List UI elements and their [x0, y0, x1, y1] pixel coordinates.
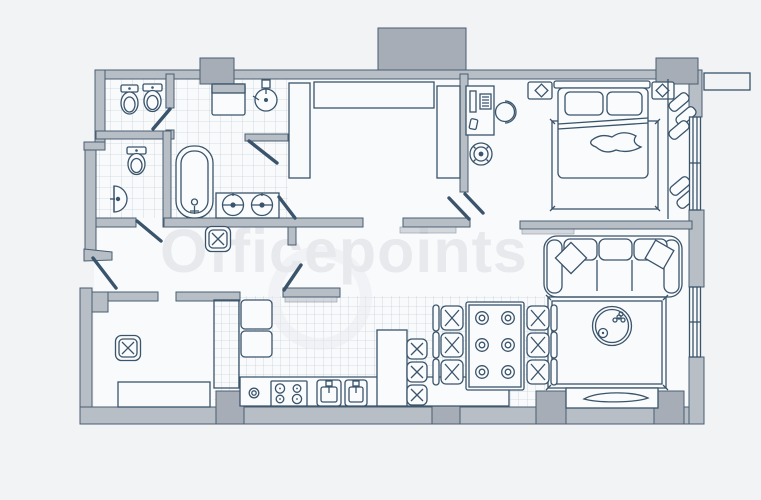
wall — [283, 288, 340, 297]
wall — [403, 218, 470, 227]
bar-stool-icon — [407, 362, 427, 382]
dining-chair-icon — [527, 305, 557, 331]
pouf-icon — [206, 227, 231, 252]
wall-column — [378, 28, 466, 70]
dining-chair-icon — [433, 359, 463, 385]
headboard — [554, 81, 650, 88]
dining-chair-icon — [527, 359, 557, 385]
wall — [689, 357, 704, 424]
cabinet-icon — [241, 300, 272, 329]
nightstand-icon — [652, 82, 674, 99]
dining-area — [433, 302, 557, 390]
stove-icon — [271, 381, 307, 406]
pouf-icon — [116, 336, 141, 361]
window-icon — [690, 117, 701, 210]
double-vanity-icon — [216, 193, 279, 219]
wall — [96, 131, 174, 139]
dining-table-icon — [466, 302, 524, 390]
bathtub-icon — [176, 146, 213, 218]
dining-chair-icon — [527, 332, 557, 358]
wall — [84, 142, 105, 150]
bidet-icon — [121, 85, 138, 114]
desk-icon — [466, 86, 494, 135]
sofa-icon — [544, 236, 682, 297]
dining-chair-icon — [433, 332, 463, 358]
wall — [520, 221, 692, 229]
floor-plan-canvas: Officepoints — [0, 0, 761, 500]
wall-column — [656, 58, 698, 84]
bar-stool-icon — [407, 385, 427, 405]
ledge — [285, 297, 337, 302]
wall — [85, 150, 96, 252]
kitchen-sink-icon — [345, 380, 367, 406]
wall-column — [200, 58, 234, 84]
double-bed-icon — [558, 88, 648, 178]
wall — [80, 407, 702, 424]
kitchen-sink-icon — [317, 380, 341, 406]
wall — [245, 134, 288, 141]
pillow-icon — [607, 92, 642, 115]
bar-stool-icon — [407, 339, 427, 359]
tv-stand-icon — [566, 388, 658, 408]
kitchen-island-icon — [377, 330, 407, 406]
wall — [166, 74, 174, 108]
cabinet-icon — [241, 331, 272, 357]
wall — [288, 227, 296, 245]
wall — [163, 131, 171, 227]
ledge — [522, 229, 574, 234]
washing-machine-icon — [212, 84, 245, 115]
dining-chair-icon — [433, 305, 463, 331]
wall — [164, 218, 363, 227]
wall-column — [536, 391, 566, 424]
toilet-icon — [127, 147, 146, 175]
nightstand-icon — [528, 82, 552, 99]
ledge — [400, 227, 456, 233]
pillow-icon — [565, 92, 603, 115]
wall — [92, 292, 108, 312]
wall — [96, 70, 695, 79]
floor-plan: Officepoints — [0, 0, 761, 500]
window-icon — [690, 287, 701, 357]
wall — [80, 288, 92, 424]
wall — [96, 218, 136, 227]
external-unit-icon — [704, 73, 750, 90]
monitor-icon — [470, 91, 476, 112]
toilet-icon — [143, 84, 162, 112]
